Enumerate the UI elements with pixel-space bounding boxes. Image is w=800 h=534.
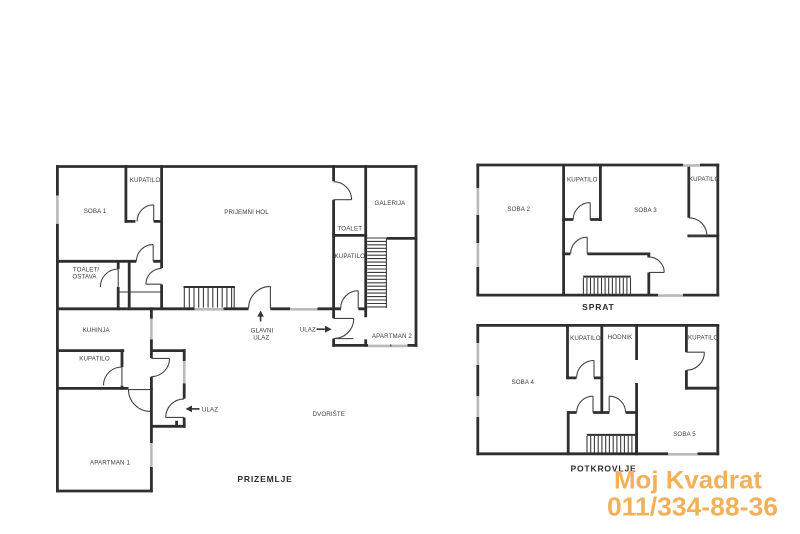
- svg-text:OSTAVA: OSTAVA: [72, 274, 97, 281]
- svg-text:APARTMAN 2: APARTMAN 2: [372, 333, 412, 340]
- svg-text:HODNIK: HODNIK: [608, 334, 633, 341]
- svg-text:KUPATILO: KUPATILO: [79, 355, 110, 362]
- svg-text:TOALET/: TOALET/: [73, 267, 100, 274]
- svg-text:SOBA 2: SOBA 2: [507, 206, 530, 213]
- svg-text:ULAZ: ULAZ: [300, 327, 316, 334]
- svg-text:KUPATILO: KUPATILO: [689, 176, 720, 183]
- svg-text:ULAZ: ULAZ: [253, 334, 269, 341]
- svg-text:SOBA 3: SOBA 3: [634, 207, 657, 214]
- svg-text:DVORIŠTE: DVORIŠTE: [313, 411, 345, 418]
- svg-text:011/334-88-36: 011/334-88-36: [607, 492, 778, 522]
- svg-text:SOBA 4: SOBA 4: [511, 379, 534, 386]
- svg-text:GALERIJA: GALERIJA: [375, 200, 406, 207]
- svg-text:ULAZ: ULAZ: [202, 406, 218, 413]
- svg-text:KUPATILO: KUPATILO: [688, 335, 719, 342]
- svg-text:PRIZEMLJE: PRIZEMLJE: [237, 474, 292, 484]
- svg-text:SPRAT: SPRAT: [582, 302, 614, 312]
- svg-text:TOALET: TOALET: [338, 226, 363, 233]
- svg-text:Moj Kvadrat: Moj Kvadrat: [614, 466, 763, 494]
- svg-text:SOBA 5: SOBA 5: [673, 431, 696, 438]
- svg-text:APARTMAN 1: APARTMAN 1: [90, 459, 130, 466]
- svg-text:SOBA 1: SOBA 1: [84, 208, 107, 215]
- svg-text:PRIJEMNI HOL: PRIJEMNI HOL: [224, 209, 269, 216]
- svg-text:KUPATILO: KUPATILO: [130, 177, 161, 184]
- svg-text:KUPATILO: KUPATILO: [567, 177, 598, 184]
- svg-text:KUPATILO: KUPATILO: [570, 335, 601, 342]
- svg-text:KUHINJA: KUHINJA: [83, 327, 111, 334]
- svg-text:KUPATILO: KUPATILO: [335, 253, 366, 260]
